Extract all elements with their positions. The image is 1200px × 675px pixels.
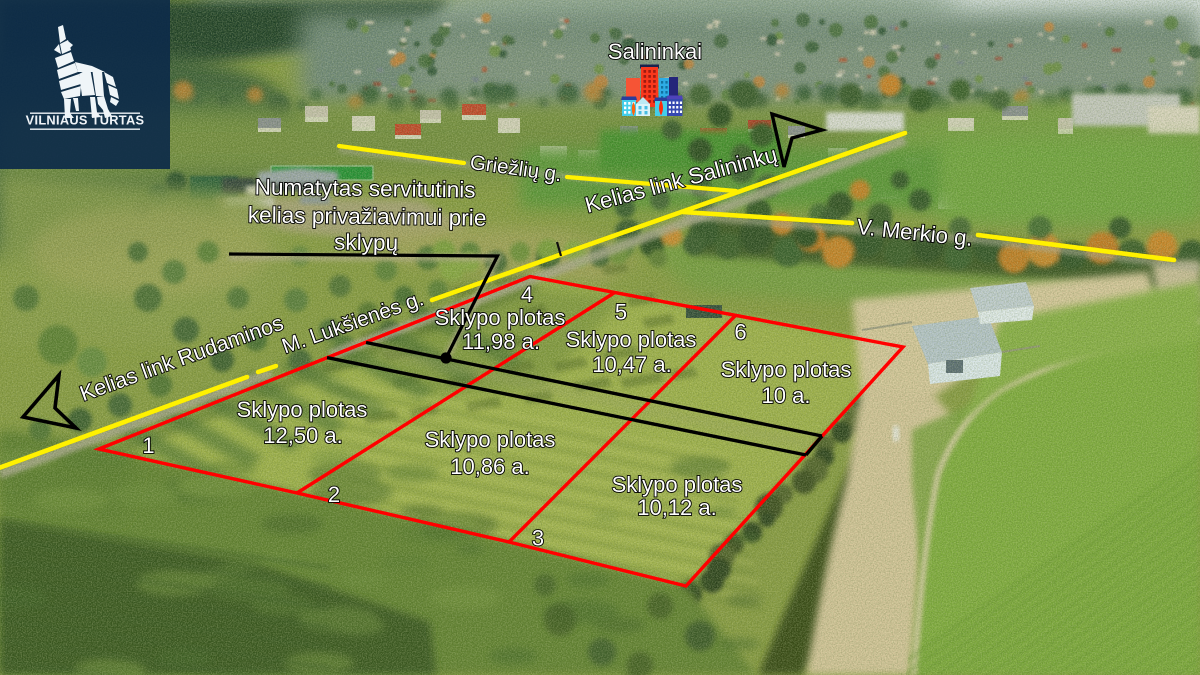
svg-text:11,98 a.: 11,98 a. <box>462 329 540 354</box>
svg-text:1: 1 <box>142 433 154 458</box>
svg-text:Sklypo plotas: Sklypo plotas <box>721 357 852 382</box>
svg-text:sklypų: sklypų <box>334 230 398 256</box>
svg-text:Sklypo plotas: Sklypo plotas <box>425 427 556 452</box>
svg-text:6: 6 <box>734 320 746 345</box>
svg-text:Salininkai: Salininkai <box>608 39 702 64</box>
svg-text:Sklypo plotas: Sklypo plotas <box>435 305 566 330</box>
svg-text:Sklypo plotas: Sklypo plotas <box>612 472 743 497</box>
svg-text:10,47 a.: 10,47 a. <box>592 352 672 377</box>
svg-text:10 a.: 10 a. <box>762 383 811 408</box>
svg-text:kelias privažiavimui prie: kelias privažiavimui prie <box>248 202 487 230</box>
svg-text:3: 3 <box>532 526 544 551</box>
svg-text:Numatytas servitutinis: Numatytas servitutinis <box>254 174 475 202</box>
svg-text:5: 5 <box>615 300 627 325</box>
svg-text:10,12 a.: 10,12 a. <box>637 495 717 520</box>
svg-text:12,50 a.: 12,50 a. <box>263 423 343 448</box>
svg-text:Sklypo plotas: Sklypo plotas <box>237 397 368 422</box>
svg-text:2: 2 <box>328 482 340 507</box>
svg-text:4: 4 <box>521 282 533 307</box>
svg-text:10,86 a.: 10,86 a. <box>450 454 530 479</box>
svg-text:VILNIAUS TURTAS: VILNIAUS TURTAS <box>26 113 145 128</box>
svg-text:Sklypo plotas: Sklypo plotas <box>566 327 697 352</box>
